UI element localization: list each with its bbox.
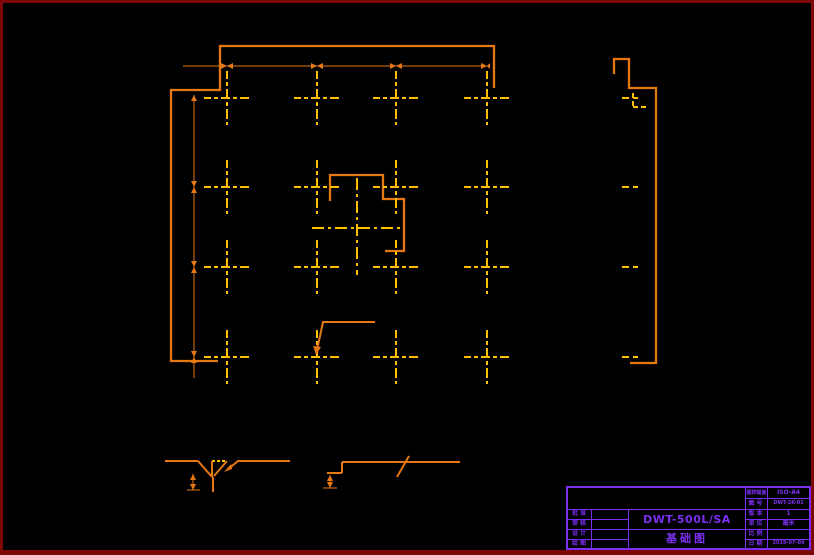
foundation-outline-left xyxy=(171,46,494,361)
foundation-drawing xyxy=(3,3,811,550)
detail-section-a xyxy=(165,461,290,492)
tb-design-label: 设计 xyxy=(569,529,591,539)
tb-unit-label: 单位 xyxy=(746,519,767,529)
dimension-lines xyxy=(183,66,490,378)
tb-sheet-format-label: 图样幅面 xyxy=(746,488,767,498)
tb-version-value: 1 xyxy=(768,509,809,519)
right-edge-centerline-ticks xyxy=(622,98,638,357)
tb-scale-value xyxy=(768,529,809,539)
tb-unit-value: 毫米 xyxy=(768,519,809,529)
tb-approve-label: 批准 xyxy=(569,509,591,519)
plan-leader-arrow xyxy=(317,322,375,350)
foundation-outline-right xyxy=(614,59,656,363)
center-cross xyxy=(212,178,402,461)
tb-draw-label: 绘图 xyxy=(569,539,591,548)
tb-check-label: 审核 xyxy=(569,519,591,529)
dimension-arrows xyxy=(191,63,490,363)
detail-section-b xyxy=(323,456,460,488)
cad-canvas: 批准 审核 设计 绘图 DWT-500L/SA 基础图 图样幅面 图号 版本 单… xyxy=(0,0,814,555)
tb-drawing-no-label: 图号 xyxy=(746,498,767,509)
tb-scale-label: 比例 xyxy=(746,529,767,539)
tb-sheet-format-value: ISO-A4 xyxy=(768,488,809,498)
tb-version-label: 版本 xyxy=(746,509,767,519)
tb-date-label: 日期 xyxy=(746,539,767,548)
tb-date-value: 2019-07-09 xyxy=(768,539,809,548)
tb-drawing-name: 基础图 xyxy=(629,529,745,548)
hidden-edge-dashes xyxy=(633,93,648,108)
tb-drawing-no-value: DWT-2K-01 xyxy=(768,498,809,509)
tb-product-model: DWT-500L/SA xyxy=(629,509,745,529)
title-block: 批准 审核 设计 绘图 DWT-500L/SA 基础图 图样幅面 图号 版本 单… xyxy=(566,486,811,550)
